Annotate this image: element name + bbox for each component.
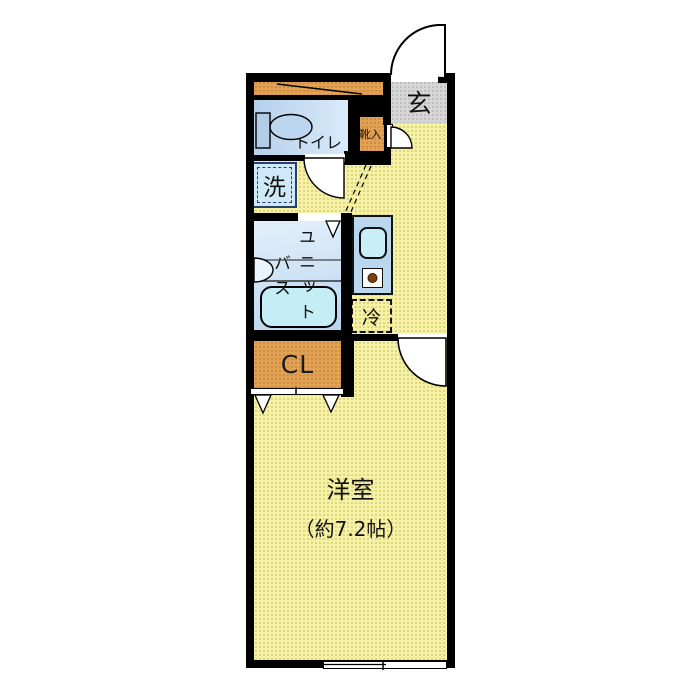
toilet-door-arc xyxy=(304,158,344,198)
ceiling-dash-line-2 xyxy=(350,166,371,214)
genkan-door-arc xyxy=(391,127,412,148)
burner-dot xyxy=(368,274,377,283)
entrance-door-arc xyxy=(391,25,445,77)
closet-door-triangle-left xyxy=(255,395,271,413)
floorplan-canvas: 玄 トイレ 靴入 洗 ユニット バス 冷 CL 洋室 （約7.2帖） xyxy=(0,0,700,700)
symbol-overlay xyxy=(0,0,700,700)
bath-basin xyxy=(254,258,273,282)
ceiling-dash-line-1 xyxy=(345,165,366,213)
toilet-bowl xyxy=(270,115,312,140)
storage-diagonal xyxy=(277,84,362,94)
room-door-arc xyxy=(398,338,446,386)
bath-door-triangle xyxy=(326,221,340,237)
closet-door-triangle-right xyxy=(323,395,339,412)
toilet-tank xyxy=(256,113,270,148)
